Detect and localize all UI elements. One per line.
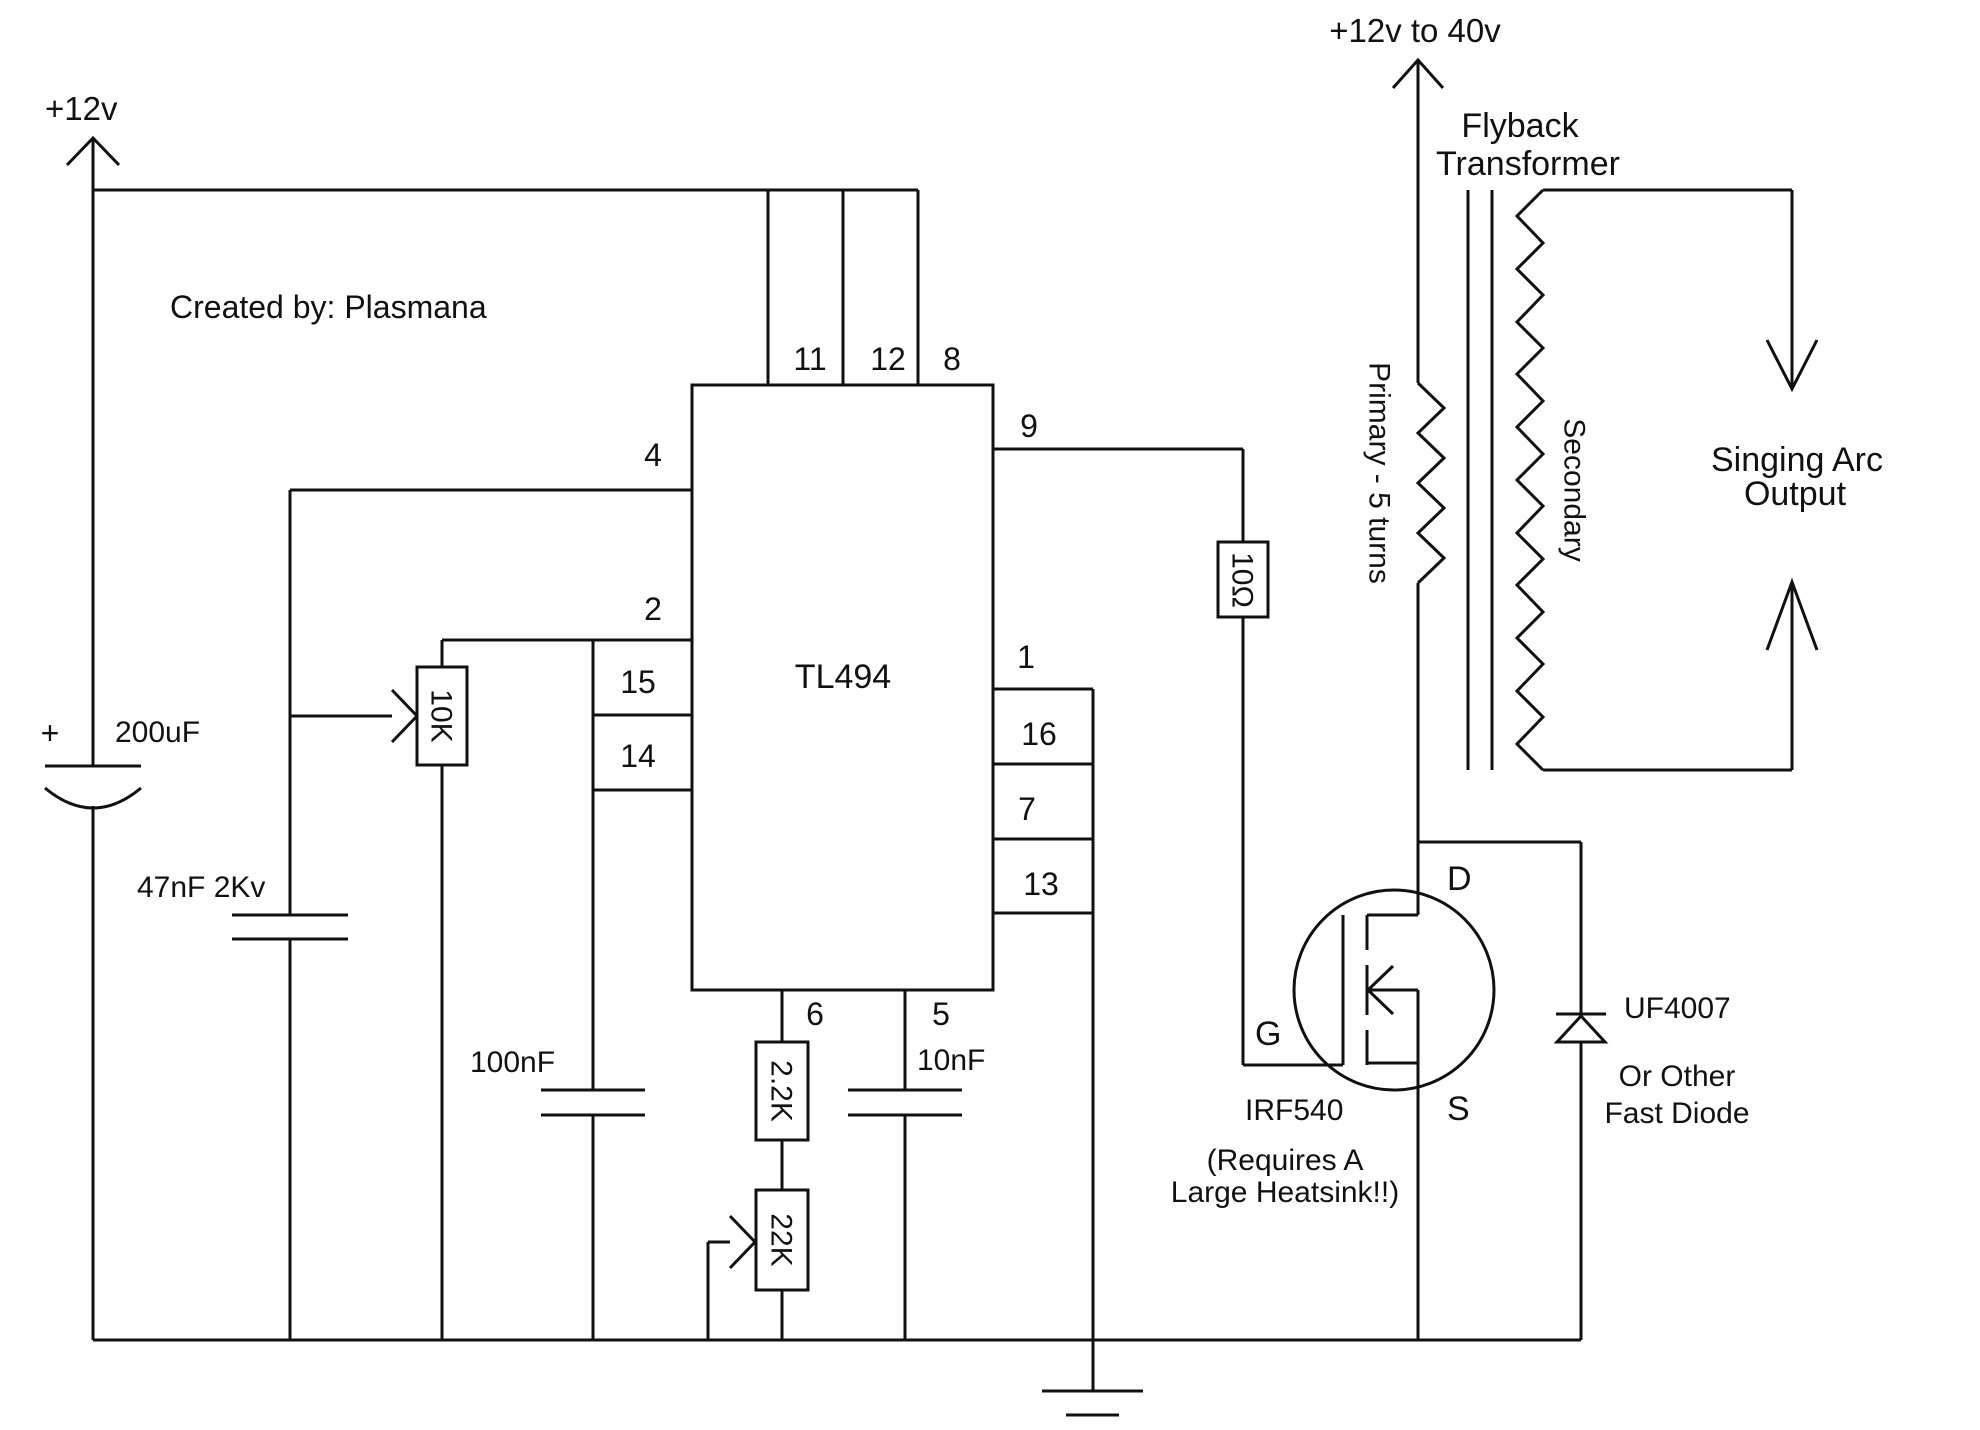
flyback-transformer: +12v to 40v Flyback Transformer Primary …: [1329, 12, 1620, 842]
mosfet-note-line2: Large Heatsink!!): [1171, 1176, 1399, 1209]
capacitor-47nf-label: 47nF 2Kv: [137, 871, 265, 904]
pin14-label: 14: [620, 738, 656, 774]
potentiometer-10k: 10K: [290, 640, 467, 1340]
pin7-label: 7: [1018, 791, 1036, 827]
left-pin-stubs: 2 15 14: [442, 591, 692, 1090]
mosfet-part-label: IRF540: [1245, 1094, 1343, 1127]
pot-10k-label: 10K: [425, 689, 458, 742]
left-supply-label: +12v: [45, 90, 118, 127]
pin4-net: 4: [290, 437, 692, 1340]
right-supply-label: +12v to 40v: [1329, 12, 1501, 49]
ic-tl494: TL494 11 12 8: [692, 190, 993, 990]
arc-output: Singing Arc Output: [1543, 190, 1883, 770]
wiper-arrow-icon: [730, 1216, 755, 1268]
resistor-2k2-label: 2.2K: [765, 1060, 798, 1122]
secondary-coil-icon: [1517, 190, 1543, 770]
pin4-label: 4: [644, 437, 662, 473]
timing-resistor-chain: 6 2.2K 22K: [708, 990, 824, 1340]
transformer-title-line2: Transformer: [1436, 145, 1620, 183]
right-pin-stubs: 1 16 7 13: [993, 639, 1143, 1415]
capacitor-100nf: 100nF: [470, 1046, 645, 1340]
resistor-10ohm-label: 10Ω: [1226, 552, 1259, 608]
mosfet-note-line1: (Requires A: [1207, 1144, 1364, 1177]
capacitor-10nf-label: 10nF: [917, 1044, 985, 1077]
pin1-label: 1: [1017, 639, 1035, 675]
pin6-label: 6: [806, 996, 824, 1032]
ground-icon: [1042, 1391, 1143, 1415]
pin9-label: 9: [1020, 408, 1038, 444]
pin2-label: 2: [644, 591, 662, 627]
pin16-label: 16: [1021, 716, 1057, 752]
diode-triangle-icon: [1557, 1016, 1605, 1042]
credit-text: Created by: Plasmana: [170, 289, 487, 325]
mosfet-irf540: D G S IRF540 (Requires A Large Heatsink!…: [1171, 842, 1494, 1340]
polarity-plus-label: +: [41, 715, 60, 751]
pot-22k-label: 22K: [765, 1213, 798, 1266]
pin15-label: 15: [620, 664, 656, 700]
secondary-label: Secondary: [1558, 418, 1591, 561]
pin5-label: 5: [932, 996, 950, 1032]
diode-note-line2: Fast Diode: [1604, 1097, 1749, 1130]
output-label-line1: Singing Arc: [1711, 441, 1883, 479]
capacitor-curved-plate: [45, 788, 141, 808]
capacitor-47nf: 47nF 2Kv: [137, 871, 348, 939]
pin13-label: 13: [1023, 866, 1059, 902]
capacitor-10nf: 5 10nF: [848, 990, 985, 1340]
output-label-line2: Output: [1744, 475, 1847, 513]
transformer-title-line1: Flyback: [1461, 107, 1579, 145]
ic-name-label: TL494: [795, 658, 891, 696]
primary-label: Primary - 5 turns: [1363, 362, 1396, 584]
pin8-label: 8: [943, 341, 961, 377]
primary-coil-icon: [1418, 383, 1444, 583]
source-label: S: [1447, 1090, 1470, 1128]
diode-part-label: UF4007: [1624, 992, 1731, 1025]
singing-arc-schematic: +12v Created by: Plasmana + 200uF 4 47nF…: [0, 0, 1980, 1430]
pin12-label: 12: [870, 341, 906, 377]
drain-label: D: [1447, 860, 1472, 898]
wiper-arrow-icon: [392, 690, 417, 742]
capacitor-100nf-label: 100nF: [470, 1046, 555, 1079]
capacitor-200uf: + 200uF: [41, 715, 200, 808]
gate-label: G: [1255, 1015, 1281, 1053]
capacitor-200uf-label: 200uF: [115, 716, 200, 749]
diode-note-line1: Or Other: [1619, 1060, 1736, 1093]
schematic-canvas: +12v Created by: Plasmana + 200uF 4 47nF…: [0, 0, 1980, 1430]
pin11-label: 11: [793, 341, 826, 377]
